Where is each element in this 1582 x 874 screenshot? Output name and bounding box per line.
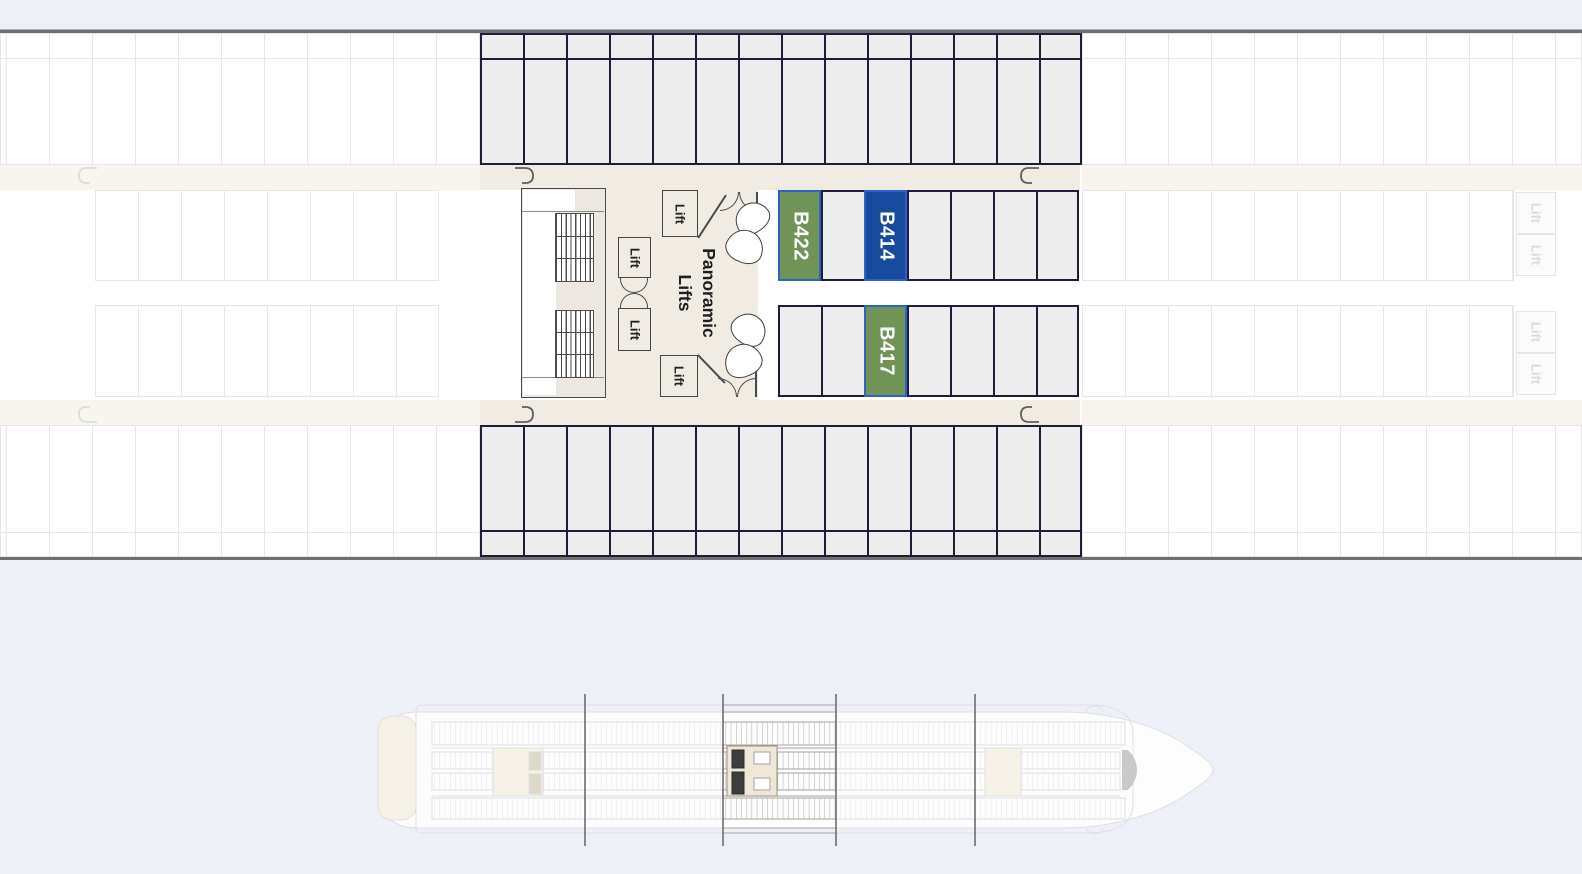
corridor-bottom	[480, 400, 1080, 425]
door-arc	[1018, 166, 1040, 188]
cabin-grid-faded-mid-bottom-right	[1082, 305, 1514, 397]
cabin-grid-faded-top-right	[1082, 33, 1582, 165]
balcony-divider-faded	[1, 532, 479, 533]
deck-plan-viewer: Lift Lift Lift Lift Lift Lift Lift	[0, 0, 1582, 874]
minimap-midship-lift	[754, 752, 770, 764]
lift-label: Lift	[672, 366, 687, 386]
minimap-bow-notch	[1086, 706, 1103, 712]
cabin-grid-top	[480, 33, 1082, 165]
door-arc-faded	[76, 402, 98, 424]
stair-landing	[523, 190, 556, 395]
stairs-upper-flight	[555, 213, 594, 282]
lift-label: Lift	[1529, 245, 1544, 265]
lift-box: Lift	[618, 308, 651, 351]
lift-label: Lift	[1529, 322, 1544, 342]
door-arc	[514, 166, 536, 188]
corridor-top-faded-right	[1082, 165, 1582, 190]
cabin-grid-faded-top-left	[0, 33, 480, 165]
adjacent-lift-box: Lift	[1516, 353, 1556, 395]
balcony-divider-faded	[1, 58, 479, 59]
cabin-b422-label: B422	[788, 211, 811, 261]
lift-box: Lift	[660, 355, 698, 397]
minimap-midship-stairs	[732, 772, 744, 794]
corridor-bottom-faded-left	[0, 400, 480, 425]
hull-edge-top	[0, 29, 1582, 33]
minimap-aft-stairs	[529, 774, 541, 794]
adjacent-lift-box: Lift	[1516, 311, 1556, 353]
cabin-grid-faded-mid-top-left	[95, 190, 439, 281]
stair-landing	[523, 190, 575, 211]
cabin-b414[interactable]: B414	[864, 190, 907, 281]
panoramic-lifts-label: Panoramic Lifts	[671, 231, 723, 355]
cabin-grid-faded-mid-bottom-left	[95, 305, 439, 397]
cabin-grid-mid-top	[778, 190, 1079, 281]
lift-label: Lift	[673, 203, 688, 223]
minimap-midship-stairs	[732, 750, 744, 768]
cabin-grid-faded-bottom-right	[1082, 425, 1582, 557]
cabin-b417[interactable]: B417	[864, 305, 907, 397]
balcony-divider	[482, 58, 1080, 60]
door-arc-faded	[76, 166, 98, 188]
adjacent-lift-box: Lift	[1516, 234, 1556, 276]
stair-landing-line	[522, 211, 604, 212]
minimap-midship-lift	[754, 778, 770, 790]
cabin-grid-faded-mid-top-right	[1082, 190, 1514, 281]
lift-box: Lift	[618, 237, 651, 278]
lift-label: Lift	[1529, 364, 1544, 384]
lift-label: Lift	[627, 247, 642, 267]
stairwell	[521, 188, 606, 398]
minimap-fore-lobby	[985, 748, 1021, 796]
minimap-aft-stairs	[529, 752, 541, 770]
balcony-divider-faded	[1083, 532, 1581, 533]
ship-minimap[interactable]	[372, 686, 1217, 854]
panoramic-lifts-line1: Panoramic	[697, 248, 722, 337]
lift-box: Lift	[662, 190, 698, 237]
adjacent-lift-box: Lift	[1516, 192, 1556, 234]
stairs-lower-flight	[555, 310, 594, 378]
cabin-b417-label: B417	[874, 326, 897, 376]
door-arc	[514, 402, 536, 424]
cabin-b422[interactable]: B422	[778, 190, 821, 281]
lift-label: Lift	[1529, 203, 1544, 223]
lobby-seating-top	[725, 203, 779, 269]
cabin-b414-label: B414	[874, 211, 897, 261]
cabin-grid-mid-bottom	[778, 305, 1079, 397]
door-arc	[1018, 402, 1040, 424]
balcony-divider	[482, 530, 1080, 532]
corridor-top-faded-left	[0, 165, 480, 190]
cabin-grid-bottom	[480, 425, 1082, 557]
cabin-grid-faded-bottom-left	[0, 425, 480, 557]
balcony-divider-faded	[1083, 58, 1581, 59]
corridor-bottom-faded-right	[1082, 400, 1582, 425]
minimap-stern-platform	[378, 716, 416, 820]
corridor-top	[480, 165, 1080, 190]
armchair	[721, 224, 769, 269]
panoramic-lifts-line2: Lifts	[673, 275, 698, 312]
lobby-seating-bottom	[722, 312, 778, 382]
minimap-bow-notch	[1086, 706, 1103, 712]
lift-label: Lift	[627, 319, 642, 339]
